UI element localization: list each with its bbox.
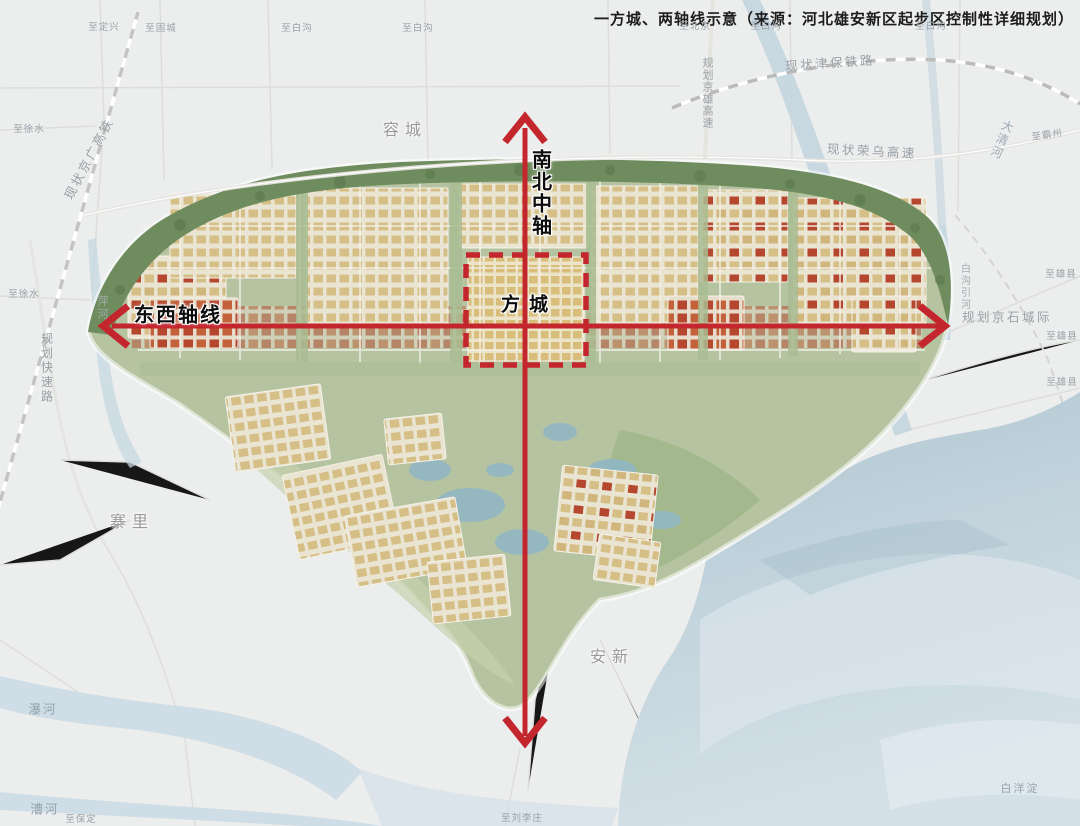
map-illustration	[0, 0, 1080, 826]
planning-map: 一方城、两轴线示意（来源：河北雄安新区起步区控制性详细规划） 容城 安新 寨里 …	[0, 0, 1080, 826]
map-title: 一方城、两轴线示意（来源：河北雄安新区起步区控制性详细规划）	[594, 8, 1074, 29]
